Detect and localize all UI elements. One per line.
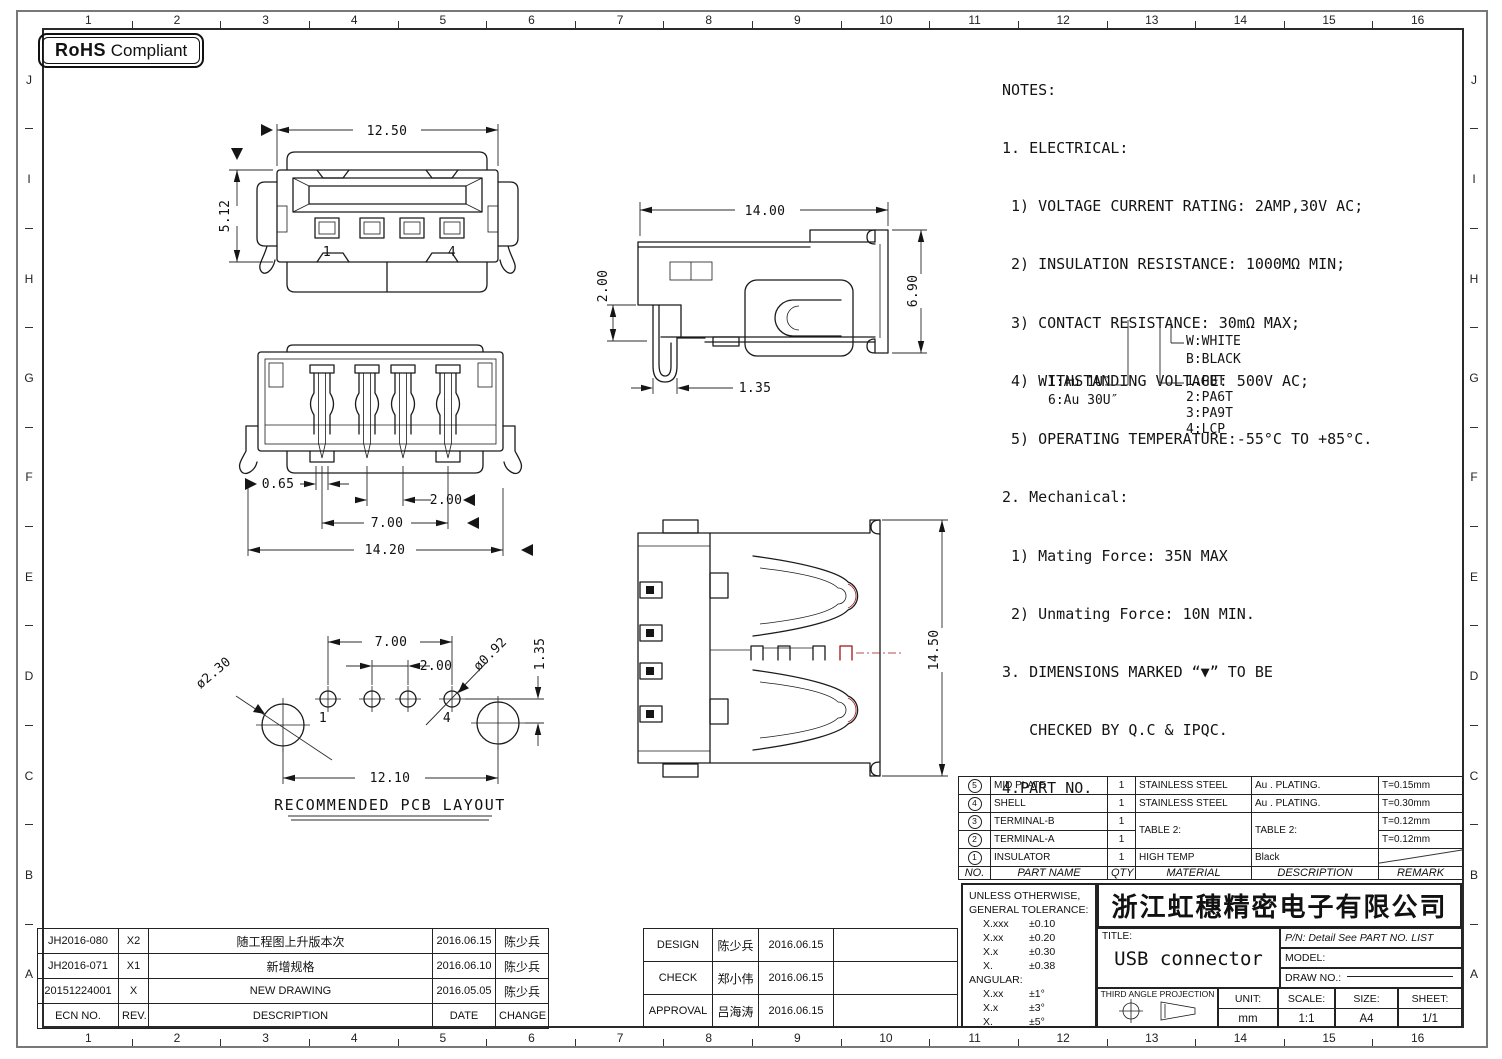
title-label: TITLE: <box>1098 929 1279 942</box>
dim-pcb-small-hole: ø0.92 <box>471 635 510 674</box>
model-row: MODEL: <box>1280 948 1462 968</box>
side-view: 14.00 6.90 2.00 1.35 <box>595 188 945 403</box>
tol-val: ±3° <box>1029 1001 1045 1015</box>
grid-label: H <box>17 229 41 328</box>
bom-item-no: 5 <box>968 779 982 793</box>
grid-strip-top: 12345678910111213141516 <box>44 11 1462 28</box>
grid-label: 15 <box>1285 11 1374 28</box>
bom-remark: T=0.30mm <box>1379 795 1463 813</box>
bom-material: STAINLESS STEEL <box>1136 795 1252 813</box>
bom-qty: 1 <box>1108 813 1136 831</box>
grid-label: 10 <box>842 11 931 28</box>
grid-label: 1 <box>44 1029 133 1046</box>
unit-label: UNIT: <box>1219 989 1277 1009</box>
bom-item-no: 2 <box>968 833 982 847</box>
grid-label: 14 <box>1196 1029 1285 1046</box>
grid-label: 2 <box>133 11 222 28</box>
unit-box: UNIT: mm <box>1218 988 1278 1028</box>
rev-rev: X2 <box>119 929 149 954</box>
grid-label: 15 <box>1285 1029 1374 1046</box>
material-option-pa9t: 3:PA9T <box>1186 406 1233 421</box>
grid-label: 16 <box>1373 11 1462 28</box>
projection-box: THIRD ANGLE PROJECTION <box>1097 988 1218 1028</box>
bom-row-1: 1 INSULATOR 1 HIGH TEMP Black <box>959 849 1463 867</box>
grid-label: 9 <box>753 11 842 28</box>
grid-label: 4 <box>310 1029 399 1046</box>
bom-material: STAINLESS STEEL <box>1136 777 1252 795</box>
color-option-black: B:BLACK <box>1186 352 1241 367</box>
grid-label: 8 <box>664 11 753 28</box>
front-pin-1-label: 1 <box>323 245 331 260</box>
grid-label: 7 <box>576 11 665 28</box>
tol-val: ±0.20 <box>1029 931 1055 945</box>
rev-change: 陈少兵 <box>496 979 549 1004</box>
grid-label: 14 <box>1196 11 1285 28</box>
note-line: 1) Mating Force: 35N MAX <box>1002 547 1372 566</box>
approval-role: DESIGN <box>644 929 713 962</box>
grid-label: F <box>1463 428 1485 527</box>
bom-qty: 1 <box>1108 795 1136 813</box>
dim-side-height: 6.90 <box>906 275 921 308</box>
bom-qty: 1 <box>1108 849 1136 867</box>
grid-label: G <box>17 328 41 427</box>
pcb-caption-underline <box>288 816 492 820</box>
note-line: 2) INSULATION RESISTANCE: 1000MΩ MIN; <box>1002 255 1372 274</box>
bom-material: HIGH TEMP <box>1136 849 1252 867</box>
rev-ecn: JH2016-071 <box>38 954 119 979</box>
grid-label: H <box>1463 229 1485 328</box>
model-label: MODEL: <box>1285 952 1325 964</box>
material-option-pbt: 1:PBT <box>1186 374 1225 389</box>
material-option-pa6t: 2:PA6T <box>1186 390 1233 405</box>
grid-label: I <box>1463 129 1485 228</box>
side-view-body <box>638 230 888 382</box>
bom-item-no: 1 <box>968 851 982 865</box>
dim-side-length: 14.00 <box>745 204 786 219</box>
grid-label: 10 <box>842 1029 931 1046</box>
dim-pcb-mount-span: 12.10 <box>370 771 411 786</box>
rev-header-date: DATE <box>433 1004 496 1029</box>
dim-side-lead: 2.00 <box>596 270 611 303</box>
grid-label: B <box>1463 825 1485 924</box>
grid-label: 5 <box>399 1029 488 1046</box>
front-pin-4-label: 4 <box>448 245 456 260</box>
tol-key: X.xx <box>983 931 1029 945</box>
revision-header-row: ECN NO. REV. DESCRIPTION DATE CHANGE <box>38 1004 549 1029</box>
revision-row: JH2016-071 X1 新增规格 2016.06.10 陈少兵 <box>38 954 549 979</box>
dim-front-height: 5.12 <box>218 200 233 233</box>
dim-pcb-span: 7.00 <box>375 635 408 650</box>
bom-header-remark: REMARK <box>1379 867 1463 880</box>
tolerance-angular-label: ANGULAR: <box>969 973 1095 987</box>
grid-label: E <box>1463 527 1485 626</box>
scale-value: 1:1 <box>1279 1009 1334 1028</box>
grid-label: D <box>17 626 41 725</box>
plating-option-1: 1:Au 1U″ <box>1048 375 1111 390</box>
note-line: NOTES: <box>1002 81 1372 100</box>
grid-label: 8 <box>664 1029 753 1046</box>
bom-part-name: TERMINAL-B <box>991 813 1108 831</box>
rev-ecn: 20151224001 <box>38 979 119 1004</box>
bom-part-name: MID PLATE <box>991 777 1108 795</box>
approval-name: 郑小伟 <box>713 962 759 995</box>
approval-row: CHECK 郑小伟 2016.06.15 <box>644 962 958 995</box>
pcb-dimensions: 7.00 2.00 ø0.92 ø2.30 1.35 12.10 1 4 <box>193 635 548 786</box>
front-view-body <box>257 152 518 292</box>
dim-pcb-pitch: 2.00 <box>420 659 453 674</box>
tolerance-title-1: UNLESS OTHERWISE, <box>969 889 1095 903</box>
rohs-badge: RoHS Compliant <box>38 33 204 68</box>
dim-pcb-big-hole: ø2.30 <box>193 655 234 693</box>
rohs-bold-text: RoHS <box>55 40 106 60</box>
color-option-white: W:WHITE <box>1186 334 1241 349</box>
rev-header-rev: REV. <box>119 1004 149 1029</box>
tol-val: ±0.10 <box>1029 917 1055 931</box>
grid-label: 11 <box>930 11 1019 28</box>
bom-description: Au . PLATING. <box>1252 795 1379 813</box>
part-number-legend-lines <box>1040 300 1300 440</box>
approval-date: 2016.06.15 <box>759 995 834 1028</box>
approval-date: 2016.06.15 <box>759 929 834 962</box>
tolerance-title-2: GENERAL TOLERANCE: <box>969 903 1095 917</box>
draw-no-label: DRAW NO.: <box>1285 972 1341 984</box>
rohs-rest-text: Compliant <box>111 41 188 60</box>
approval-date: 2016.06.15 <box>759 962 834 995</box>
d im-pin-width: 0.65 <box>262 477 295 492</box>
dim-pitch: 2.00 <box>430 493 463 508</box>
note-line: 1) VOLTAGE CURRENT RATING: 2AMP,30V AC; <box>1002 197 1372 216</box>
size-label: SIZE: <box>1336 989 1397 1009</box>
rev-desc: 新增规格 <box>149 954 433 979</box>
scale-box: SCALE: 1:1 <box>1278 988 1335 1028</box>
grid-label: B <box>17 825 41 924</box>
tol-val: ±1° <box>1029 987 1045 1001</box>
grid-label: 12 <box>1019 11 1108 28</box>
top-view: 14.50 <box>608 498 958 813</box>
top-view-body <box>638 520 880 777</box>
grid-label: 2 <box>133 1029 222 1046</box>
size-box: SIZE: A4 <box>1335 988 1398 1028</box>
sheet-label: SHEET: <box>1399 989 1461 1009</box>
grid-label: C <box>17 726 41 825</box>
grid-strip-left: JIHGFEDCBA <box>17 30 41 1024</box>
note-line: 1. ELECTRICAL: <box>1002 139 1372 158</box>
revision-row: 20151224001 X NEW DRAWING 2016.05.05 陈少兵 <box>38 979 549 1004</box>
approval-empty <box>834 962 958 995</box>
rev-date: 2016.05.05 <box>433 979 496 1004</box>
bom-header-no: NO. <box>959 867 991 880</box>
tol-val: ±0.30 <box>1029 945 1055 959</box>
bom-material: TABLE 2: <box>1136 813 1252 849</box>
unit-value: mm <box>1219 1009 1277 1028</box>
sheet-value: 1/1 <box>1399 1009 1461 1028</box>
grid-label: F <box>17 428 41 527</box>
grid-label: J <box>1463 30 1485 129</box>
dim-pcb-offset: 1.35 <box>533 638 548 671</box>
projection-label: THIRD ANGLE PROJECTION <box>1098 989 1217 999</box>
front-view: 12.50 5.12 1 4 <box>215 108 545 308</box>
tol-key: X.x <box>983 945 1029 959</box>
draw-no-row: DRAW NO.: <box>1280 968 1462 988</box>
rev-date: 2016.06.15 <box>433 929 496 954</box>
bom-part-name: TERMINAL-A <box>991 831 1108 849</box>
tol-key: X. <box>983 959 1029 973</box>
bom-remark: T=0.12mm <box>1379 831 1463 849</box>
grid-strip-right: JIHGFEDCBA <box>1463 30 1485 1024</box>
grid-label: 6 <box>487 1029 576 1046</box>
approval-role: CHECK <box>644 962 713 995</box>
grid-label: 3 <box>221 1029 310 1046</box>
grid-label: C <box>1463 726 1485 825</box>
grid-label: A <box>1463 925 1485 1024</box>
bom-header-description: DESCRIPTION <box>1252 867 1379 880</box>
grid-label: D <box>1463 626 1485 725</box>
pcb-holes <box>256 686 525 752</box>
grid-label: 6 <box>487 11 576 28</box>
approval-name: 吕海涛 <box>713 995 759 1028</box>
pcb-layout-view: 7.00 2.00 ø0.92 ø2.30 1.35 12.10 1 4 REC… <box>180 608 555 848</box>
bom-header-part: PART NAME <box>991 867 1108 880</box>
tol-val: ±5° <box>1029 1015 1045 1029</box>
revision-table: JH2016-080 X2 随工程图上升版本次 2016.06.15 陈少兵 J… <box>37 928 549 1029</box>
pcb-pin-1-label: 1 <box>319 711 327 726</box>
grid-label: 11 <box>930 1029 1019 1046</box>
note-line: CHECKED BY Q.C & IPQC. <box>1002 721 1372 740</box>
bottom-view: 0.65 2.00 7.00 14.20 <box>215 338 550 578</box>
rev-header-change: CHANGE <box>496 1004 549 1029</box>
rev-rev: X <box>119 979 149 1004</box>
bom-part-name: INSULATOR <box>991 849 1108 867</box>
dim-top-depth: 14.50 <box>927 630 942 671</box>
grid-label: 9 <box>753 1029 842 1046</box>
bom-remark: T=0.15mm <box>1379 777 1463 795</box>
bom-description: Black <box>1252 849 1379 867</box>
tol-key: X.xx <box>983 987 1029 1001</box>
dim-side-tail: 1.35 <box>739 381 772 396</box>
scale-label: SCALE: <box>1279 989 1334 1009</box>
tol-key: X. <box>983 1015 1029 1029</box>
grid-label: 1 <box>44 11 133 28</box>
bom-row-5: 5 MID PLATE 1 STAINLESS STEEL Au . PLATI… <box>959 777 1463 795</box>
tol-key: X.x <box>983 1001 1029 1015</box>
bom-qty: 1 <box>1108 777 1136 795</box>
approval-row: APPROVAL 吕海涛 2016.06.15 <box>644 995 958 1028</box>
material-option-lcp: 4:LCP <box>1186 422 1225 437</box>
rev-ecn: JH2016-080 <box>38 929 119 954</box>
top-view-dimensions: 14.50 <box>882 520 948 776</box>
bom-description: Au . PLATING. <box>1252 777 1379 795</box>
size-value: A4 <box>1336 1009 1397 1028</box>
rev-desc: NEW DRAWING <box>149 979 433 1004</box>
drawing-title: USB connector <box>1098 948 1279 970</box>
drawing-sheet: 12345678910111213141516 1234567891011121… <box>0 0 1502 1059</box>
approval-empty <box>834 929 958 962</box>
rev-desc: 随工程图上升版本次 <box>149 929 433 954</box>
bottom-view-body <box>240 345 522 473</box>
bom-table: 5 MID PLATE 1 STAINLESS STEEL Au . PLATI… <box>958 776 1463 880</box>
grid-label: G <box>1463 328 1485 427</box>
dim-front-width: 12.50 <box>367 124 408 139</box>
tol-val: ±0.38 <box>1029 959 1055 973</box>
tol-key: X.xxx <box>983 917 1029 931</box>
bom-remark: T=0.12mm <box>1379 813 1463 831</box>
title-box: TITLE: USB connector <box>1097 928 1280 988</box>
approval-table: DESIGN 陈少兵 2016.06.15 CHECK 郑小伟 2016.06.… <box>643 928 958 1028</box>
grid-label: 12 <box>1019 1029 1108 1046</box>
approval-row: DESIGN 陈少兵 2016.06.15 <box>644 929 958 962</box>
plating-option-6: 6:Au 30U″ <box>1048 393 1118 408</box>
note-line: 2) Unmating Force: 10N MIN. <box>1002 605 1372 624</box>
bottom-view-dimensions: 0.65 2.00 7.00 14.20 <box>245 466 533 558</box>
bom-item-no: 3 <box>968 815 982 829</box>
dim-span: 7.00 <box>371 516 404 531</box>
rev-rev: X1 <box>119 954 149 979</box>
approval-role: APPROVAL <box>644 995 713 1028</box>
bom-row-4: 4 SHELL 1 STAINLESS STEEL Au . PLATING. … <box>959 795 1463 813</box>
third-angle-projection-icon <box>1113 999 1203 1023</box>
rev-header-desc: DESCRIPTION <box>149 1004 433 1029</box>
dim-body-width: 14.20 <box>365 543 406 558</box>
grid-label: I <box>17 129 41 228</box>
approval-name: 陈少兵 <box>713 929 759 962</box>
bom-item-no: 4 <box>968 797 982 811</box>
bom-header-qty: QTY <box>1108 867 1136 880</box>
bom-description: TABLE 2: <box>1252 813 1379 849</box>
bom-header-row: NO. PART NAME QTY MATERIAL DESCRIPTION R… <box>959 867 1463 880</box>
tolerance-block: UNLESS OTHERWISE, GENERAL TOLERANCE: X.x… <box>961 883 1097 1028</box>
bom-qty: 1 <box>1108 831 1136 849</box>
grid-label: E <box>17 527 41 626</box>
rev-header-ecn: ECN NO. <box>38 1004 119 1029</box>
grid-label: 16 <box>1373 1029 1462 1046</box>
rev-change: 陈少兵 <box>496 929 549 954</box>
approval-empty <box>834 995 958 1028</box>
bom-header-material: MATERIAL <box>1136 867 1252 880</box>
grid-label: 5 <box>399 11 488 28</box>
note-line: 3. DIMENSIONS MARKED “▼” TO BE <box>1002 663 1372 682</box>
pcb-pin-4-label: 4 <box>443 711 451 726</box>
grid-label: 13 <box>1108 1029 1197 1046</box>
sheet-box: SHEET: 1/1 <box>1398 988 1462 1028</box>
grid-label: 13 <box>1108 11 1197 28</box>
front-view-dimensions: 12.50 5.12 <box>218 124 498 262</box>
company-name: 浙江虹穗精密电子有限公司 <box>1097 883 1462 928</box>
side-view-dimensions: 14.00 6.90 2.00 1.35 <box>596 202 927 396</box>
pcb-layout-caption: RECOMMENDED PCB LAYOUT <box>274 796 506 814</box>
grid-strip-bottom: 12345678910111213141516 <box>44 1029 1462 1046</box>
grid-label: 4 <box>310 11 399 28</box>
rev-change: 陈少兵 <box>496 954 549 979</box>
bom-part-name: SHELL <box>991 795 1108 813</box>
part-number-row: P/N: Detail See PART NO. LIST <box>1280 928 1462 948</box>
note-line: 2. Mechanical: <box>1002 488 1372 507</box>
bom-row-3: 3 TERMINAL-B 1 TABLE 2: TABLE 2: T=0.12m… <box>959 813 1463 831</box>
grid-label: 3 <box>221 11 310 28</box>
rev-date: 2016.06.10 <box>433 954 496 979</box>
revision-row: JH2016-080 X2 随工程图上升版本次 2016.06.15 陈少兵 <box>38 929 549 954</box>
grid-label: 7 <box>576 1029 665 1046</box>
bom-remark-diagonal <box>1379 849 1463 867</box>
